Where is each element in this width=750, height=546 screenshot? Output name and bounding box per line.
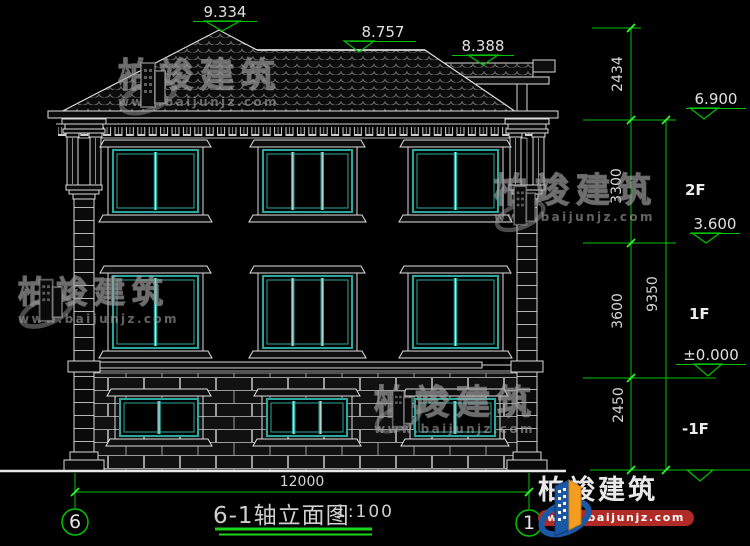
window-1f-middle <box>249 266 366 358</box>
floor-label-2f: 2F <box>685 181 706 199</box>
elevation-canvas <box>0 0 750 546</box>
level-peak: 9.334 <box>193 4 257 22</box>
eaves-cornice <box>48 111 558 138</box>
level-floor1: ±0.000 <box>676 347 746 365</box>
cad-elevation-drawing: 9.334 8.757 8.388 6.900 3.600 ±0.000 2F … <box>0 0 750 546</box>
level-ridge: 8.757 <box>350 24 416 42</box>
level-floor2: 3.600 <box>690 216 740 234</box>
dim-floor1-height: 3600 <box>610 281 626 341</box>
dim-total-height: 9350 <box>645 264 661 324</box>
brand-logo-icon <box>538 476 594 542</box>
dim-roof-height: 2434 <box>610 44 626 104</box>
window-2f-middle <box>249 140 366 222</box>
dim-floor2-height: 3300 <box>609 156 625 216</box>
level-porch-roof: 8.388 <box>452 38 514 56</box>
window-1f-right <box>399 266 512 358</box>
dim-total-width: 12000 <box>262 474 342 490</box>
drawing-scale: 1:100 <box>335 502 394 522</box>
drawing-title: 6-1轴立面图 <box>213 496 350 530</box>
floor-label-b1: -1F <box>682 420 709 438</box>
window-1f-left <box>99 266 212 358</box>
window-2f-right <box>399 140 512 222</box>
brand-logo: 柏竣建筑 www.baijunjz.com <box>538 476 694 526</box>
window-2f-left <box>99 140 212 222</box>
axis-number-6: 6 <box>61 511 89 533</box>
floor-label-1f: 1F <box>689 305 710 323</box>
level-eave: 6.900 <box>686 91 746 109</box>
dim-basement-height: 2450 <box>611 375 627 435</box>
